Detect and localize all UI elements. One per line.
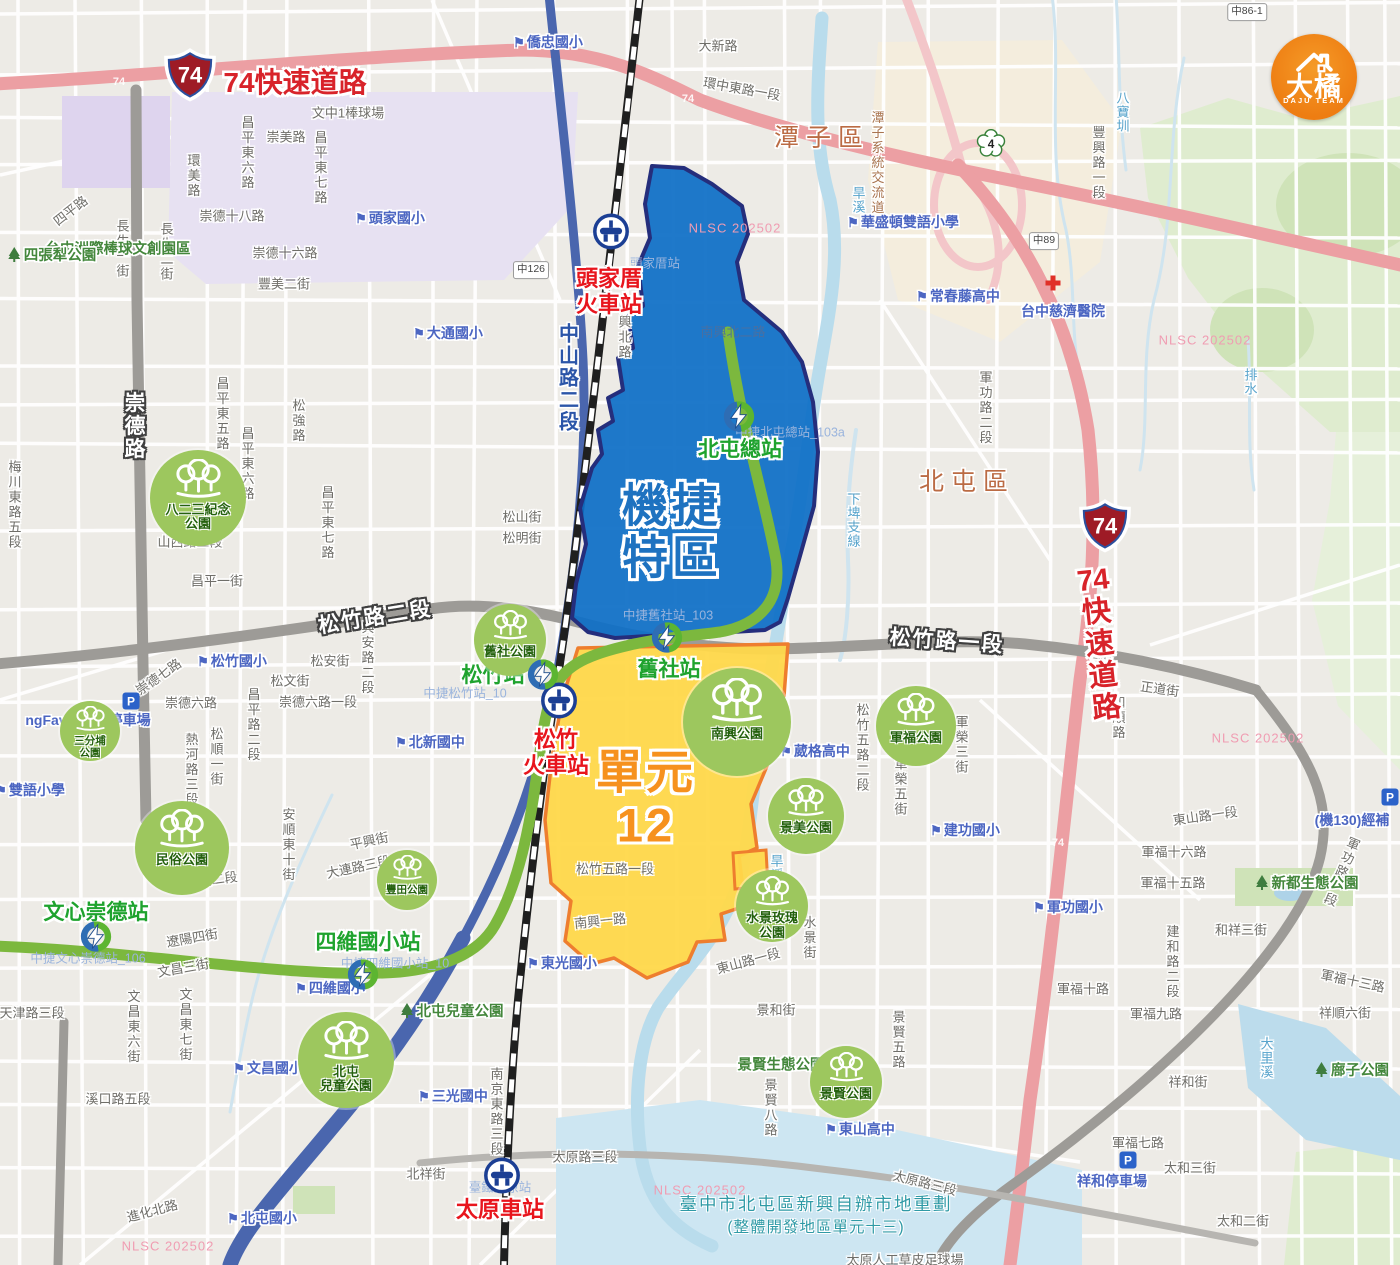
- hospital-label: 台中慈濟醫院: [1021, 301, 1105, 321]
- park-name: 水景玫瑰公園: [746, 911, 798, 940]
- road-label: 太原人工草皮足球場: [846, 1250, 963, 1265]
- school-flag-icon: ⚑: [418, 1089, 430, 1104]
- water-label: 下埤支線: [844, 492, 863, 548]
- park-trees-icon: [784, 785, 828, 821]
- school-flag-icon: ⚑: [355, 211, 367, 226]
- tra-station-icon: [484, 1157, 521, 1199]
- road-label: 景賢五路: [889, 1010, 908, 1070]
- road-label: 昌平東五路: [213, 377, 232, 452]
- tree-icon: [8, 250, 21, 266]
- route-4-shield: 4: [977, 129, 1006, 163]
- svg-text:74: 74: [1093, 513, 1118, 538]
- park-trees-icon: [826, 1052, 867, 1087]
- minor-route-marker: 中89: [1029, 232, 1059, 250]
- park-marker: 景賢公園: [810, 1046, 882, 1118]
- road-label: 環中東路一段: [702, 72, 782, 104]
- nlsc-watermark: NLSC 202502: [1212, 731, 1305, 746]
- road-label: 崇德十六路: [252, 243, 317, 262]
- road-label: 崇德六路一段: [279, 692, 357, 711]
- road-label: 文昌東六街: [124, 990, 143, 1065]
- water-label: 八寶圳: [1113, 91, 1132, 133]
- nlsc-watermark: NLSC 202502: [1159, 333, 1252, 348]
- park-name: 南興公園: [711, 727, 763, 742]
- hospital-cross-icon: [1046, 276, 1061, 291]
- road-label: 平興街: [348, 827, 390, 854]
- road-label: 大新路: [698, 36, 737, 55]
- park-trees-icon: [73, 706, 108, 736]
- park-name: 軍福公園: [890, 731, 942, 746]
- map-labels-layer: 大新路環中東路一段崇美路文中1棒球場昌平東七路昌平東六路環美路四平路崇德十八路長…: [0, 0, 1400, 1265]
- green-facility-name: 新都生態公園: [1272, 876, 1359, 892]
- road-label: 軍功路二段: [976, 371, 995, 446]
- park-trees-icon: [752, 876, 793, 911]
- route-74-road-marker: 74: [1052, 837, 1064, 849]
- road-label: 軍福十路: [1057, 979, 1109, 998]
- school-label: ⚑三光國中: [418, 1086, 488, 1106]
- green-facility-label: 北屯兒童公園: [401, 1000, 504, 1022]
- note-line1: 臺中市北屯區新興自辦市地重劃: [680, 1192, 953, 1217]
- mrt-station-icon: [651, 621, 684, 659]
- road-label: 松文街: [270, 671, 309, 690]
- park-trees-icon: [390, 855, 425, 885]
- park-marker: 景美公園: [768, 778, 844, 854]
- svg-text:74: 74: [178, 62, 203, 87]
- district-label: 北屯區: [919, 462, 1015, 498]
- school-name: 大通國小: [427, 325, 483, 341]
- park-marker: 豐田公園: [377, 850, 437, 910]
- road-label: 南興一路: [573, 908, 627, 932]
- school-name: 軍功國小: [1047, 899, 1103, 915]
- road-label: 進化北路: [124, 1194, 179, 1226]
- school-name: 北新國中: [409, 734, 465, 750]
- zone-label-jiejie-special-district: 機捷 特區: [622, 480, 722, 583]
- school-label: ⚑常春藤高中: [916, 286, 1000, 306]
- school-label: ⚑文昌國小: [233, 1058, 303, 1078]
- road-label: 軍榮五街: [891, 757, 910, 817]
- school-name: 北屯國小: [241, 1210, 297, 1226]
- road-label: 遼陽四街: [165, 923, 220, 951]
- school-label: ⚑北新國中: [395, 732, 465, 752]
- zone-unit12-line2: 12: [617, 799, 675, 852]
- water-label: 排水: [1241, 368, 1260, 396]
- route-74-shield: 74: [1077, 496, 1133, 561]
- road-label: 天津路三段: [0, 1003, 65, 1022]
- road-label: 軍福十五路: [1140, 873, 1205, 892]
- road-label: 松竹路一段: [889, 621, 1006, 659]
- tree-icon: [401, 1006, 414, 1022]
- park-marker: 民俗公園: [135, 801, 229, 895]
- road-label: 東山路一段: [1171, 801, 1238, 829]
- road-label: 和祥三街: [1215, 920, 1267, 939]
- green-facility-label: 新都生態公園: [1256, 872, 1359, 894]
- road-label: 景和街: [756, 1000, 795, 1019]
- tra-station-label: 太原車站: [456, 1197, 544, 1223]
- green-facility-name: 四張犁公園: [24, 248, 97, 264]
- water-label: 旱溪: [849, 186, 868, 214]
- road-label: 溪口路五段: [85, 1089, 150, 1108]
- park-name: 八二三紀念公園: [165, 503, 230, 532]
- school-label: ⚑華盛頓雙語小學: [847, 212, 959, 232]
- road-label: 南興北二路: [700, 322, 765, 341]
- school-label: ⚑僑忠國小: [513, 32, 583, 52]
- road-label: 松明街: [502, 528, 541, 547]
- expressway-74-top-label: 74快速道路: [223, 61, 366, 101]
- minor-route-marker: 中86-1: [1227, 3, 1267, 21]
- road-label: 松竹五路二段: [853, 703, 872, 793]
- expressway-right-label-char: 快: [1081, 596, 1113, 631]
- park-name: 豐田公園: [386, 885, 428, 897]
- mrt-station-icon: [527, 658, 560, 696]
- park-name: 北屯兒童公園: [320, 1065, 372, 1094]
- road-label: 昌平一街: [191, 571, 243, 590]
- road-label: 熱河路三段: [182, 733, 201, 808]
- road-label: 東山路一段: [714, 942, 782, 977]
- park-marker: 北屯兒童公園: [298, 1012, 394, 1108]
- road-label: 昌平路二段: [244, 688, 263, 763]
- route-74-road-marker: 74: [113, 76, 125, 88]
- school-label: ⚑頭家國小: [355, 208, 425, 228]
- road-label: 環美路: [184, 154, 203, 199]
- school-label: ⚑東山高中: [825, 1119, 895, 1139]
- school-label: ⚑軍功國小: [1033, 897, 1103, 917]
- road-label: 南京東路三段: [487, 1067, 506, 1157]
- water-label: 大里溪: [1257, 1037, 1276, 1079]
- parking-icon: P: [123, 693, 140, 710]
- school-name: 三光國中: [432, 1088, 488, 1104]
- road-label: 祥和街: [1168, 1072, 1207, 1091]
- road-label: 昌平東六路: [238, 116, 257, 191]
- road-label: 軍福七路: [1112, 1133, 1164, 1152]
- road-label: 松竹五路一段: [576, 859, 654, 878]
- mrt-station-icon: [347, 958, 380, 996]
- road-label: 景賢八路: [761, 1078, 780, 1138]
- nlsc-watermark: NLSC 202502: [122, 1239, 215, 1254]
- parking-icon: P: [1382, 789, 1399, 806]
- road-label: 梅川東路五段: [5, 460, 24, 550]
- mrt-station-label: 四維國小站: [316, 926, 421, 956]
- facility-label: 祥和停車場: [1077, 1171, 1147, 1191]
- park-trees-icon: [706, 678, 768, 727]
- school-flag-icon: ⚑: [825, 1122, 837, 1137]
- zone-label-unit-12: 單元 12: [596, 746, 696, 851]
- school-name: 華盛頓雙語小學: [861, 214, 959, 230]
- road-label: 正道街: [1139, 676, 1180, 700]
- school-name: 葳格高中: [794, 743, 850, 759]
- zone-unit12-line1: 單元: [596, 746, 696, 799]
- nlsc-watermark: NLSC 202502: [689, 221, 782, 236]
- road-label: 崇德十八路: [199, 206, 264, 225]
- daju-team-logo: 大橘 DAJU TEAM: [1271, 34, 1357, 120]
- road-label: 崇美路: [266, 127, 305, 146]
- zone-jiejie-line2: 特區: [622, 532, 722, 584]
- road-label: 崇德六路: [165, 693, 217, 712]
- land-readjustment-note: 臺中市北屯區新興自辦市地重劃 (整體開發地區單元十三): [680, 1192, 953, 1240]
- logo-circle: 大橘 DAJU TEAM: [1271, 34, 1357, 120]
- road-label: 太和三街: [1164, 1158, 1216, 1177]
- park-marker: 八二三紀念公園: [150, 450, 246, 546]
- road-label: 軍福十三路: [1319, 964, 1387, 996]
- tree-icon: [1256, 878, 1269, 894]
- school-label: ⚑葳格高中: [780, 741, 850, 761]
- mrt-station-icon: [723, 400, 756, 438]
- school-flag-icon: ⚑: [395, 735, 407, 750]
- tra-station-label: 頭家厝火車站: [576, 266, 642, 318]
- school-flag-icon: ⚑: [527, 956, 539, 971]
- school-flag-icon: ⚑: [0, 783, 7, 798]
- road-label: 松順一街: [207, 727, 226, 787]
- map-canvas: 大新路環中東路一段崇美路文中1棒球場昌平東七路昌平東六路環美路四平路崇德十八路長…: [0, 0, 1400, 1265]
- road-label: 建和路二段: [1163, 925, 1182, 1000]
- school-name: 建功國小: [944, 822, 1000, 838]
- road-label: 松強路: [289, 399, 308, 444]
- school-flag-icon: ⚑: [1033, 900, 1045, 915]
- park-trees-icon: [171, 459, 226, 503]
- park-marker: 水景玫瑰公園: [736, 870, 808, 942]
- park-name: 三分埔公園: [74, 736, 106, 760]
- park-marker: 軍福公園: [876, 686, 956, 766]
- school-name: 頭家國小: [369, 210, 425, 226]
- school-label: ⚑北屯國小: [227, 1208, 297, 1228]
- park-trees-icon: [155, 809, 209, 853]
- school-flag-icon: ⚑: [513, 35, 525, 50]
- school-flag-icon: ⚑: [233, 1061, 245, 1076]
- school-flag-icon: ⚑: [295, 981, 307, 996]
- road-label: 北祥街: [406, 1164, 445, 1183]
- school-name: 文昌國小: [247, 1060, 303, 1076]
- route-74-road-marker: 74: [682, 93, 694, 105]
- road-label: 豐美二街: [258, 274, 310, 293]
- park-marker: 三分埔公園: [60, 701, 120, 761]
- road-label: 豐興路一段: [1089, 126, 1108, 201]
- school-name: 東光國小: [541, 955, 597, 971]
- tra-station-label: 松竹火車站: [523, 727, 589, 779]
- expressway-right-label-char: 路: [1091, 691, 1123, 726]
- school-flag-icon: ⚑: [413, 326, 425, 341]
- park-trees-icon: [319, 1021, 374, 1065]
- road-label: 昌平東七路: [311, 131, 330, 206]
- expressway-right-label-char: 速: [1084, 628, 1116, 663]
- school-flag-icon: ⚑: [197, 654, 209, 669]
- road-label: 軍福十六路: [1141, 842, 1206, 861]
- road-label: 昌平東七路: [318, 486, 337, 561]
- minor-route-marker: 中126: [513, 261, 549, 279]
- green-facility-label: 廍子公園: [1315, 1059, 1389, 1081]
- park-trees-icon: [490, 610, 531, 645]
- expressway-right-label-char: 道: [1087, 659, 1119, 694]
- park-name: 民俗公園: [156, 853, 208, 868]
- road-label: 中山路二段: [553, 323, 582, 433]
- green-facility-name: 北屯兒童公園: [417, 1004, 504, 1020]
- school-name: 常春藤高中: [930, 288, 1000, 304]
- logo-subtitle: DAJU TEAM: [1271, 96, 1357, 105]
- school-label: ⚑雙語小學: [0, 780, 65, 800]
- green-facility-name: 廍子公園: [1331, 1063, 1389, 1079]
- park-name: 景賢公園: [820, 1087, 872, 1102]
- school-label: ⚑建功國小: [930, 820, 1000, 840]
- school-flag-icon: ⚑: [847, 215, 859, 230]
- expressway-right-label-char: 74: [1076, 564, 1111, 599]
- road-label: 松安街: [310, 651, 349, 670]
- road-label: 安順東十街: [279, 808, 298, 883]
- school-name: 僑忠國小: [527, 34, 583, 50]
- school-name: 雙語小學: [9, 782, 65, 798]
- road-label: 松山街: [502, 507, 541, 526]
- parking-icon: P: [1120, 1152, 1137, 1169]
- route-74-shield: 74: [162, 45, 218, 110]
- road-label: 潭子系統交流道: [868, 111, 887, 216]
- road-label: 太原路三段: [552, 1147, 617, 1166]
- school-label: ⚑東光國小: [527, 953, 597, 973]
- school-flag-icon: ⚑: [930, 823, 942, 838]
- district-label: 潭子區: [774, 118, 870, 154]
- school-label: ⚑大通國小: [413, 323, 483, 343]
- svg-text:4: 4: [988, 138, 995, 151]
- school-flag-icon: ⚑: [227, 1211, 239, 1226]
- tra-station-icon: [593, 213, 630, 255]
- note-line2: (整體開發地區單元十三): [727, 1217, 904, 1239]
- road-label: 文中1棒球場: [312, 103, 384, 122]
- road-label: 文昌三街: [156, 953, 211, 981]
- facility-label: (機130)經補: [1315, 810, 1390, 830]
- park-marker: 南興公園: [683, 668, 791, 776]
- school-name: 松竹國小: [211, 653, 267, 669]
- road-label: 崇德路: [118, 392, 148, 461]
- road-label: 四平路: [49, 191, 91, 230]
- school-flag-icon: ⚑: [916, 289, 928, 304]
- road-label: 軍福九路: [1130, 1004, 1182, 1023]
- zone-jiejie-line1: 機捷: [622, 480, 722, 532]
- mrt-station-icon: [80, 920, 113, 958]
- school-label: ⚑松竹國小: [197, 651, 267, 671]
- school-name: 東山高中: [839, 1121, 895, 1137]
- road-label: 太和二街: [1217, 1211, 1269, 1230]
- tree-icon: [1315, 1065, 1328, 1081]
- park-name: 景美公園: [780, 821, 832, 836]
- park-trees-icon: [893, 693, 939, 731]
- green-facility-label: 四張犁公園: [8, 244, 97, 266]
- road-label: 文昌東七街: [176, 988, 195, 1063]
- road-label: 祥順六街: [1319, 1003, 1371, 1022]
